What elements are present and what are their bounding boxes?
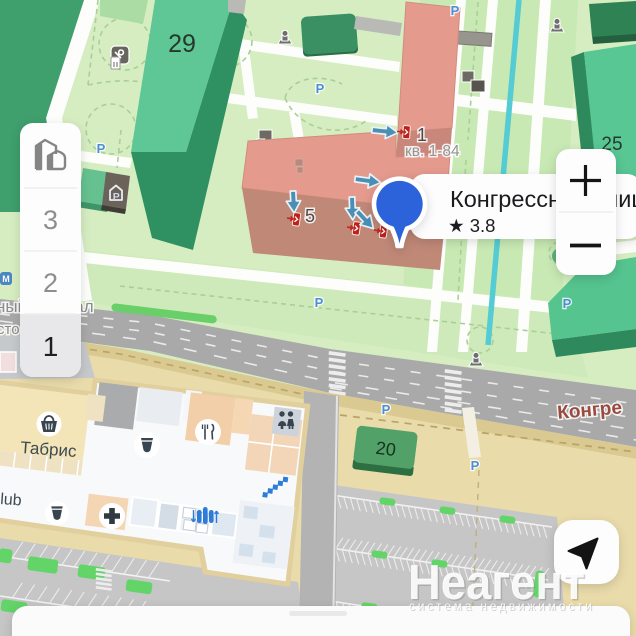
- svg-text:P: P: [451, 3, 460, 18]
- svg-text:★ 3.8: ★ 3.8: [448, 215, 495, 236]
- svg-text:2: 2: [43, 268, 58, 298]
- svg-text:P: P: [382, 402, 391, 417]
- svg-text:M: M: [2, 274, 10, 284]
- svg-text:Табрис: Табрис: [20, 438, 78, 461]
- svg-text:P: P: [113, 191, 120, 203]
- svg-text:P: P: [471, 458, 480, 473]
- svg-text:P: P: [97, 141, 106, 156]
- svg-text:29: 29: [168, 30, 196, 58]
- svg-text:lub: lub: [0, 491, 22, 509]
- svg-text:P: P: [315, 295, 324, 310]
- svg-text:P: P: [316, 81, 325, 96]
- svg-text:кв. 1-84: кв. 1-84: [405, 143, 460, 160]
- svg-text:1: 1: [43, 331, 59, 362]
- svg-text:1: 1: [417, 125, 427, 145]
- svg-text:система недвижимости: система недвижимости: [409, 599, 592, 613]
- svg-text:3: 3: [43, 205, 58, 235]
- svg-text:20: 20: [375, 438, 397, 460]
- svg-text:P: P: [563, 296, 572, 311]
- svg-text:5: 5: [305, 206, 315, 226]
- svg-text:сто: сто: [0, 321, 20, 338]
